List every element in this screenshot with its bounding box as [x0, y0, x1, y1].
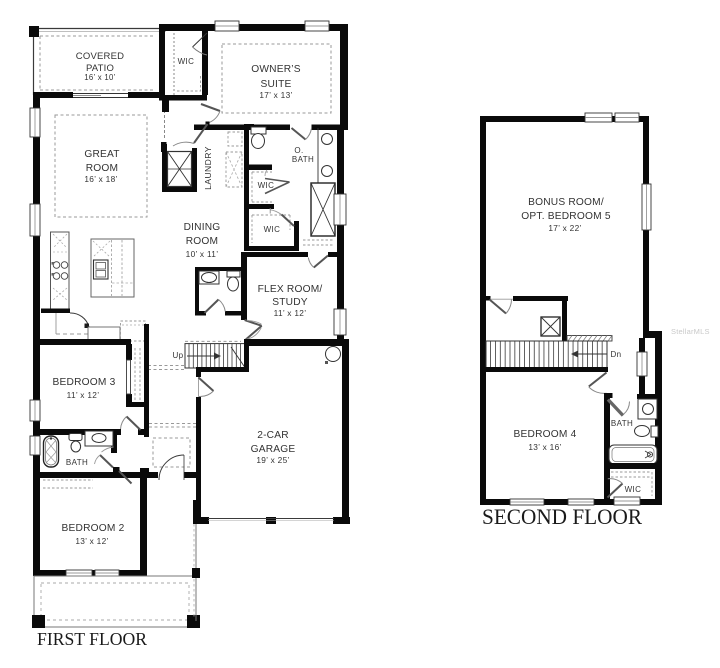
svg-text:GREAT: GREAT [84, 149, 119, 160]
svg-text:BONUS ROOM/: BONUS ROOM/ [528, 197, 604, 208]
svg-text:16’ x 18’: 16’ x 18’ [84, 174, 117, 184]
svg-text:WIC: WIC [264, 225, 281, 234]
svg-text:STUDY: STUDY [272, 297, 308, 308]
svg-text:O.: O. [294, 146, 303, 155]
svg-text:BEDROOM 2: BEDROOM 2 [62, 523, 125, 534]
svg-text:17’ x 22’: 17’ x 22’ [548, 223, 581, 233]
svg-text:Dn: Dn [610, 350, 621, 359]
svg-text:2-CAR: 2-CAR [257, 430, 289, 441]
svg-text:OWNER’S: OWNER’S [251, 64, 301, 75]
svg-text:BATH: BATH [611, 419, 633, 428]
svg-text:FIRST FLOOR: FIRST FLOOR [37, 629, 147, 649]
svg-text:Up: Up [172, 351, 183, 360]
svg-text:WIC: WIC [178, 57, 195, 66]
svg-text:ROOM: ROOM [86, 163, 119, 174]
svg-text:ROOM: ROOM [186, 236, 219, 247]
svg-text:13’ x 16’: 13’ x 16’ [528, 442, 561, 452]
svg-text:COVERED: COVERED [76, 51, 124, 62]
svg-text:LAUNDRY: LAUNDRY [203, 146, 213, 190]
svg-text:StellarMLS: StellarMLS [671, 327, 710, 336]
svg-text:OPT. BEDROOM 5: OPT. BEDROOM 5 [521, 211, 611, 222]
svg-text:BATH: BATH [292, 155, 314, 164]
svg-text:11’ x 12’: 11’ x 12’ [67, 390, 100, 400]
svg-text:19’ x 25’: 19’ x 25’ [256, 455, 289, 465]
svg-text:SUITE: SUITE [260, 79, 291, 90]
svg-text:BEDROOM 4: BEDROOM 4 [514, 429, 577, 440]
svg-text:WIC: WIC [625, 485, 642, 494]
svg-text:DINING: DINING [184, 222, 221, 233]
svg-text:BATH: BATH [66, 458, 88, 467]
svg-text:BEDROOM 3: BEDROOM 3 [53, 377, 116, 388]
svg-text:13’ x 12’: 13’ x 12’ [75, 536, 108, 546]
svg-text:FLEX ROOM/: FLEX ROOM/ [258, 284, 323, 295]
svg-text:17’ x 13’: 17’ x 13’ [259, 90, 292, 100]
svg-text:10’ x 11’: 10’ x 11’ [186, 249, 219, 259]
svg-text:WIC: WIC [258, 181, 275, 190]
svg-text:GARAGE: GARAGE [251, 444, 296, 455]
svg-text:SECOND FLOOR: SECOND FLOOR [482, 504, 642, 529]
svg-text:11’ x 12’: 11’ x 12’ [274, 308, 307, 318]
svg-text:16’ x 10’: 16’ x 10’ [84, 73, 115, 82]
